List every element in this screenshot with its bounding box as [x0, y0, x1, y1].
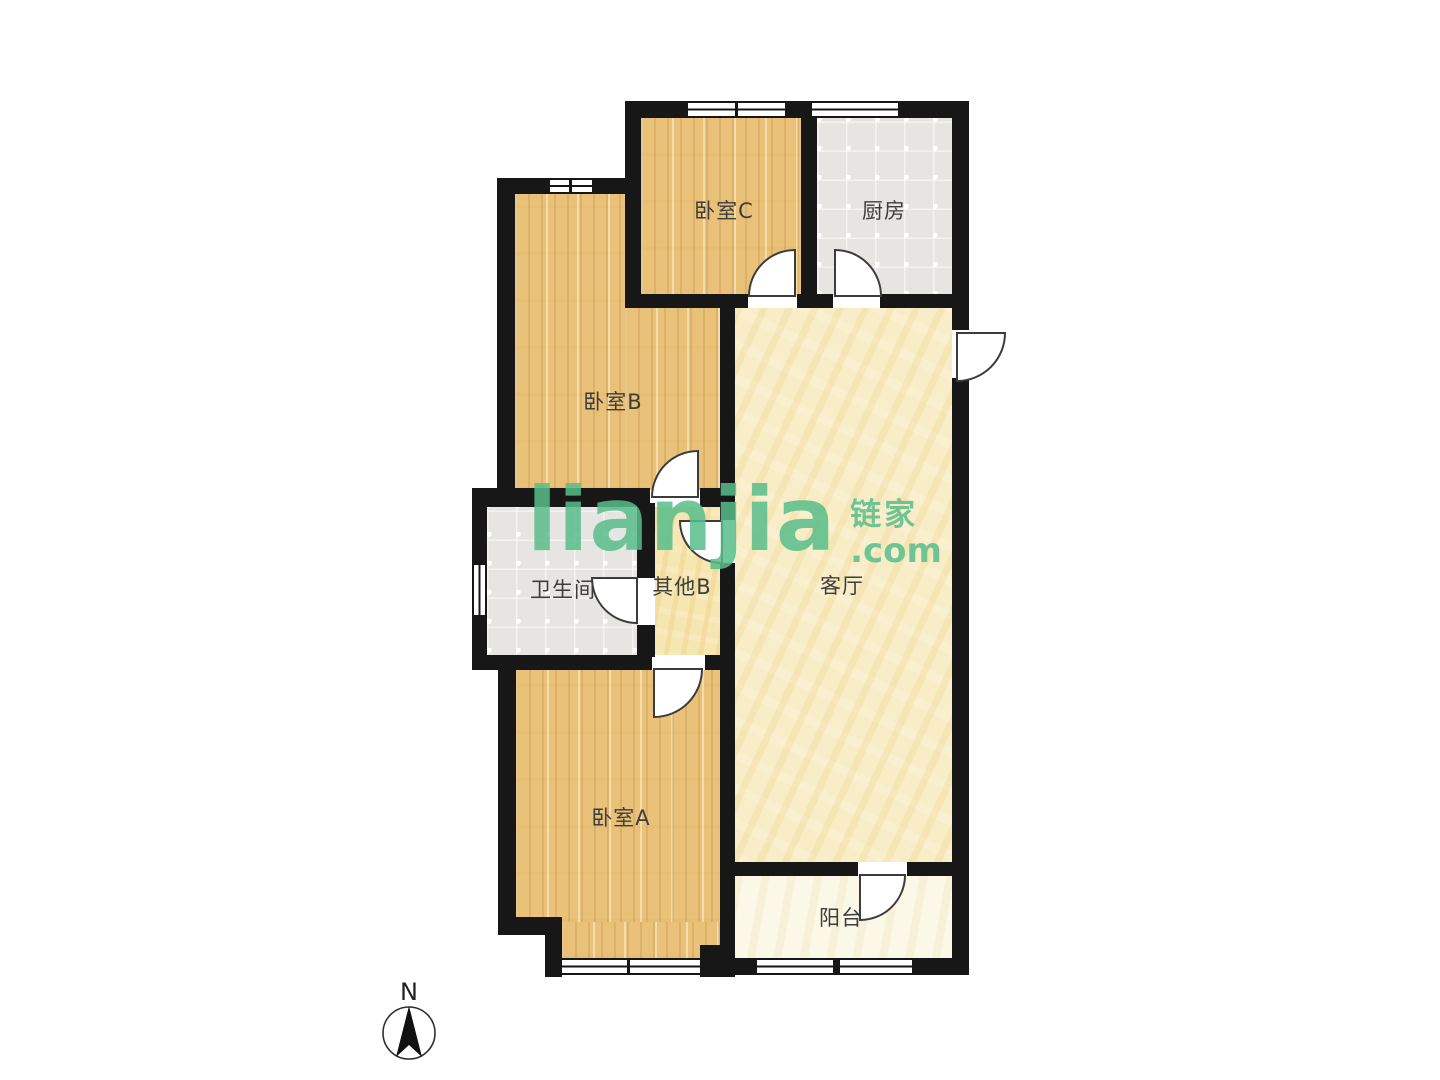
label-other-b: 其他B: [652, 571, 711, 601]
label-bedroom-a: 卧室A: [591, 802, 650, 832]
door-balcony: [860, 875, 905, 920]
door-swing-layer: N: [0, 0, 1440, 1080]
label-bedroom-b: 卧室B: [583, 386, 642, 416]
door-bedroom-a: [654, 669, 702, 717]
door-kitchen: [835, 250, 881, 296]
label-balcony: 阳台: [819, 902, 863, 932]
door-other-b: [680, 521, 722, 563]
label-living-room: 客厅: [820, 570, 864, 600]
label-bedroom-c: 卧室C: [694, 195, 754, 225]
floor-plan-canvas: N 卧室C 厨房 卧室B 卫生间 其他B 客厅 卧室A 阳台 lianjia 链…: [0, 0, 1440, 1080]
label-bathroom: 卫生间: [530, 574, 596, 604]
label-kitchen: 厨房: [862, 195, 906, 225]
north-label: N: [400, 978, 418, 1006]
door-bedroom-c: [749, 250, 795, 296]
compass-north: N: [383, 978, 435, 1059]
door-entrance: [957, 333, 1005, 381]
door-bedroom-b: [652, 451, 698, 497]
door-bathroom: [592, 578, 637, 623]
